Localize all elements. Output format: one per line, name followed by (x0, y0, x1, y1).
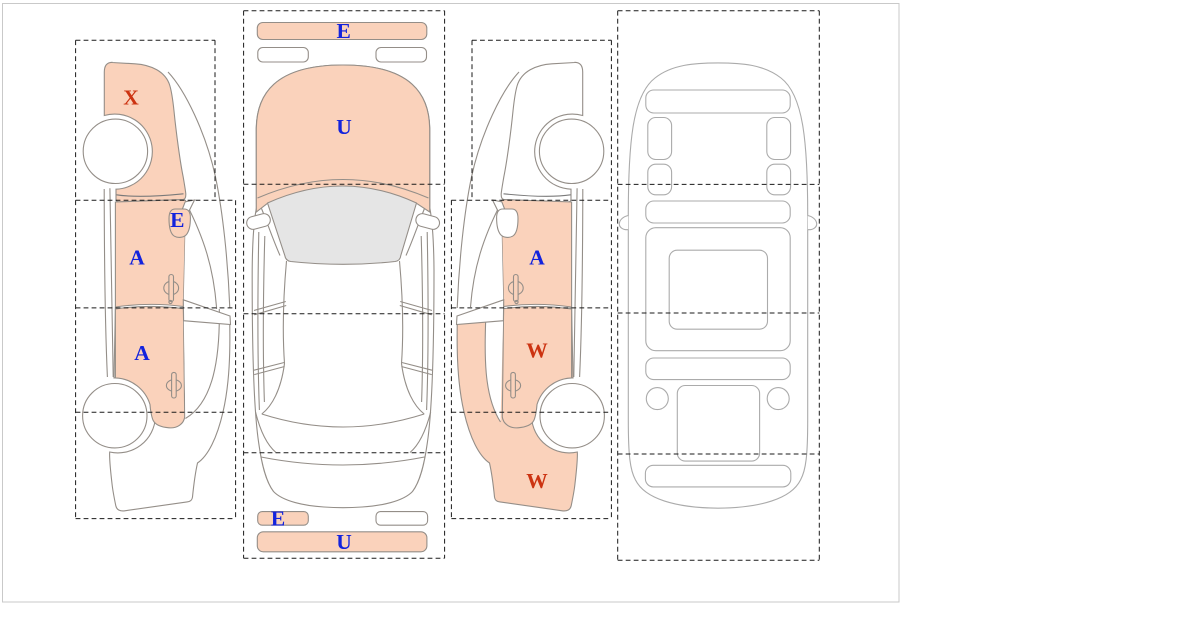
svg-text:E: E (337, 19, 351, 43)
svg-text:A: A (129, 246, 145, 270)
svg-text:X: X (123, 86, 139, 110)
svg-text:E: E (170, 208, 184, 232)
svg-text:W: W (526, 339, 548, 363)
svg-text:U: U (336, 530, 352, 554)
svg-text:W: W (526, 469, 548, 493)
svg-text:U: U (336, 115, 352, 139)
svg-text:A: A (529, 246, 545, 270)
svg-text:A: A (134, 341, 150, 365)
svg-text:E: E (271, 507, 285, 531)
